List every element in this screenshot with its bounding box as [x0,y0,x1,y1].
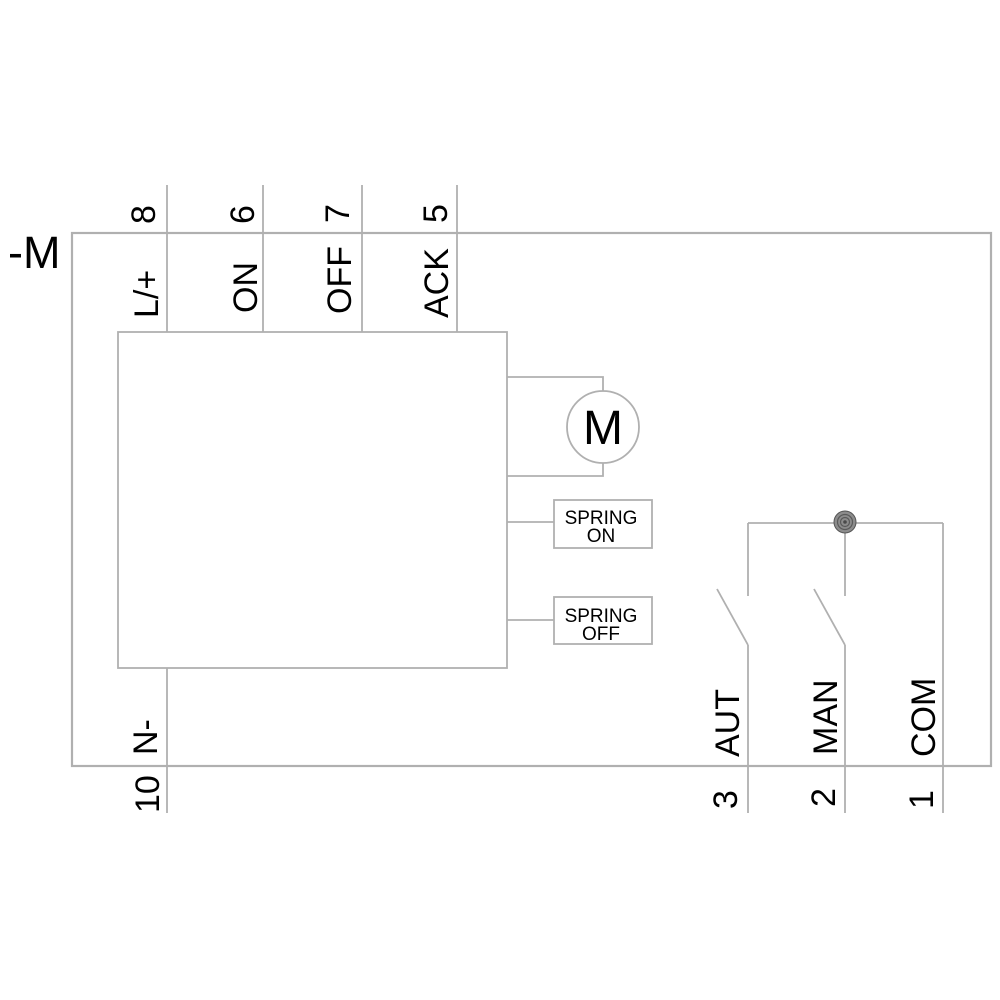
junction-dot [834,511,856,533]
terminal-number-5: 5 [417,204,455,223]
selector-number-3: 3 [707,790,745,809]
selector-number-2: 2 [805,788,843,807]
wiring-diagram-page: -M 8 6 7 5 L/+ ON OFF ACK M SPRING ON SP… [0,0,1000,1000]
terminal-label-n: N- [127,719,165,755]
terminal-label-off: OFF [321,246,359,314]
motor-wire-bottom [507,463,603,476]
motor-label: M [583,402,623,455]
terminal-number-6: 6 [224,205,262,224]
selector-label-man: MAN [807,679,845,755]
device-designation-label: -M [8,227,60,278]
terminal-label-lplus: L/+ [128,270,166,318]
selector-number-1: 1 [903,790,941,809]
motor-wire-top [507,377,603,391]
terminal-number-10: 10 [129,775,167,813]
spring-on-label-line2: ON [587,526,616,547]
terminal-label-on: ON [227,262,265,313]
aut-switch-blade [717,589,748,645]
selector-label-aut: AUT [709,689,747,757]
spring-off-label-line2: OFF [582,624,620,645]
control-unit-box [118,332,507,668]
terminal-label-ack: ACK [418,248,456,318]
selector-label-com: COM [905,678,943,757]
terminal-number-8: 8 [125,205,163,224]
terminal-number-7: 7 [319,204,357,223]
wiring-diagram: -M 8 6 7 5 L/+ ON OFF ACK M SPRING ON SP… [0,0,1000,1000]
man-switch-blade [814,589,845,645]
